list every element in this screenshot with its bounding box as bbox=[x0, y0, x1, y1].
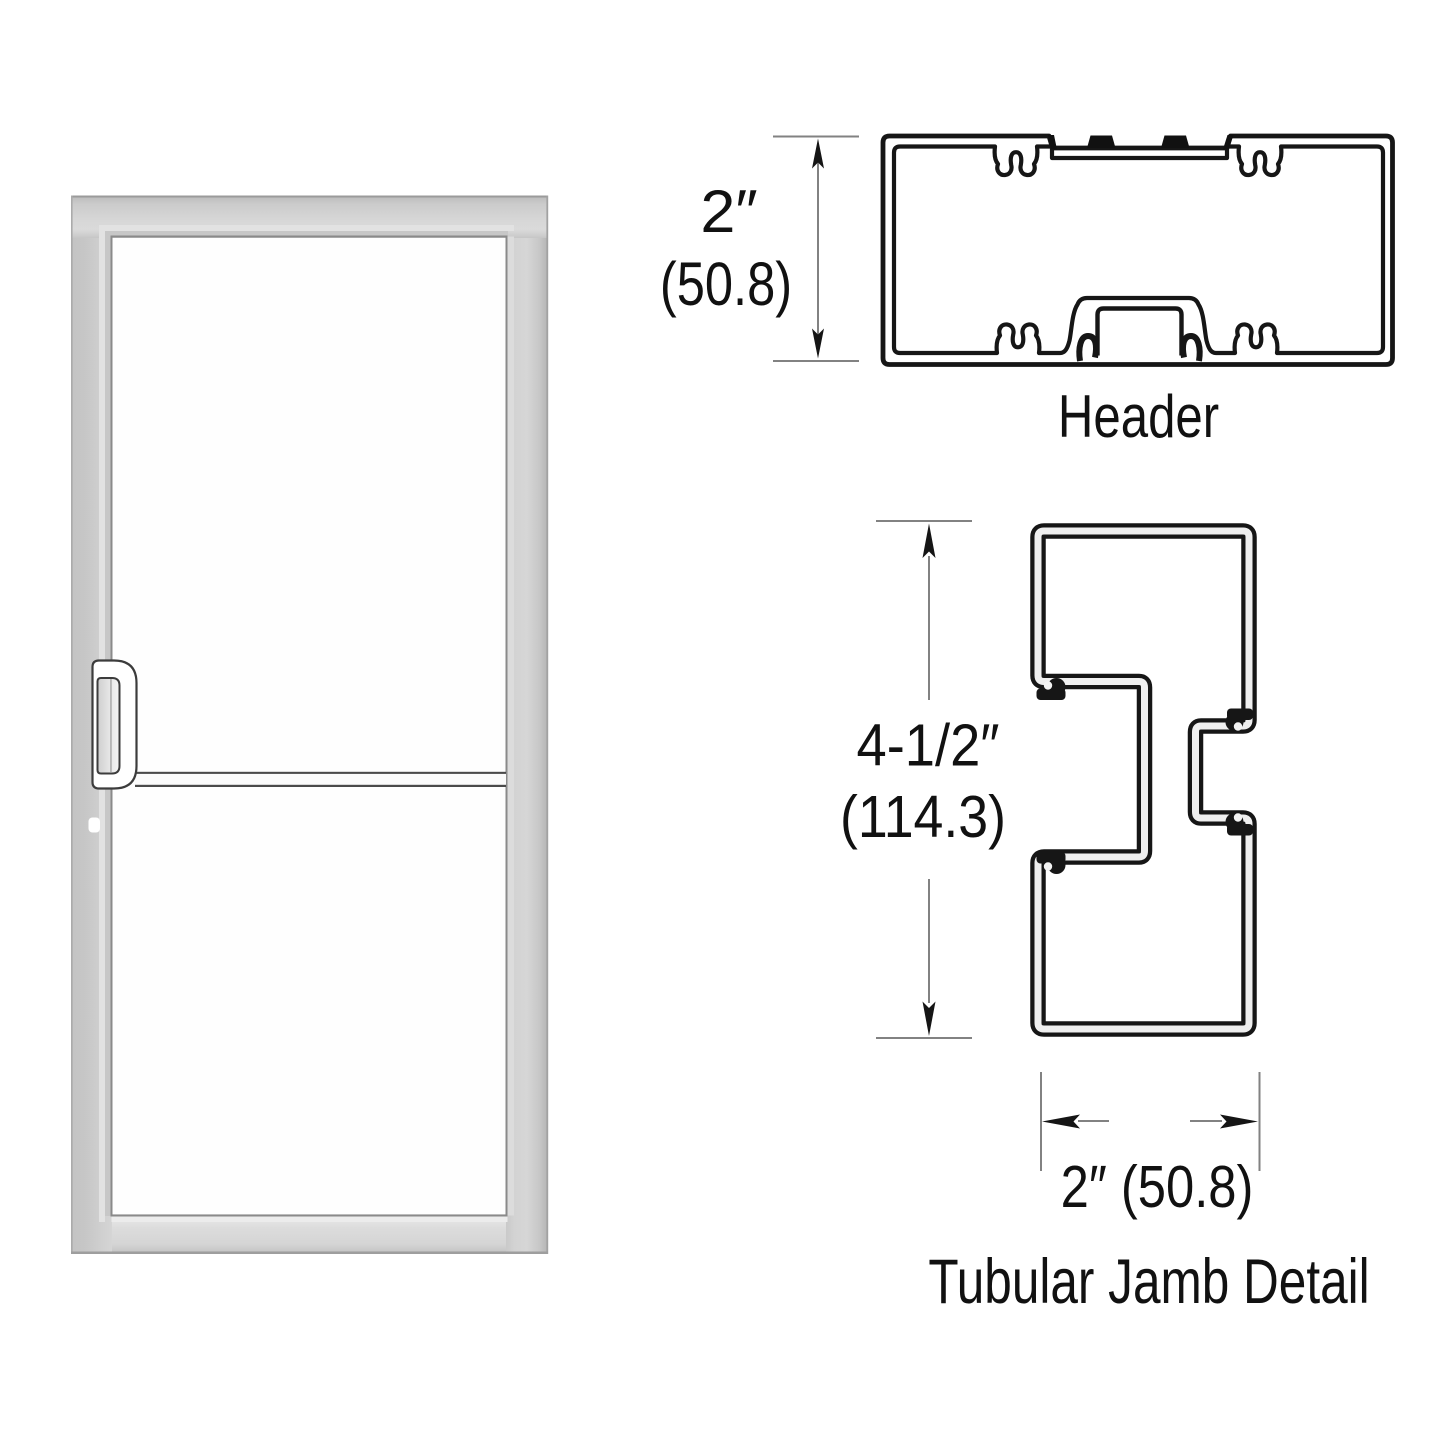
svg-text:Header: Header bbox=[1058, 382, 1219, 450]
svg-text:2″ (50.8): 2″ (50.8) bbox=[1061, 1153, 1254, 1219]
svg-text:2″: 2″ bbox=[700, 178, 757, 245]
svg-text:(114.3): (114.3) bbox=[840, 784, 1006, 850]
svg-text:Tubular Jamb Detail: Tubular Jamb Detail bbox=[928, 1246, 1369, 1317]
svg-text:(50.8): (50.8) bbox=[660, 250, 792, 319]
svg-text:4-1/2″: 4-1/2″ bbox=[857, 713, 1000, 779]
